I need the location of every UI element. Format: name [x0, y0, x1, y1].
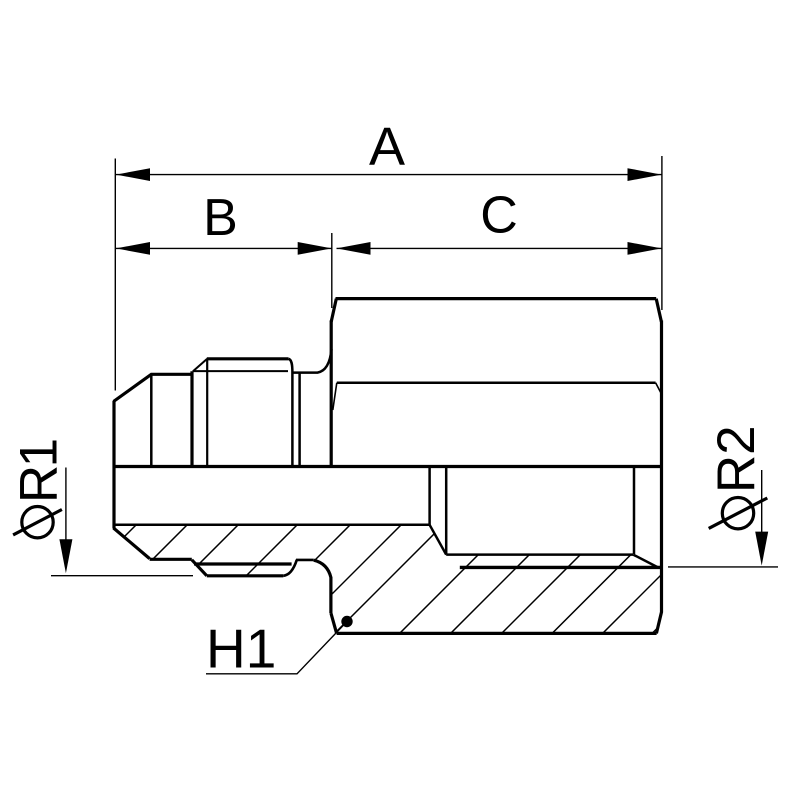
svg-text:B: B [203, 189, 238, 247]
svg-text:H1: H1 [206, 618, 276, 680]
svg-text:A: A [369, 117, 405, 177]
svg-text:R2: R2 [707, 425, 766, 493]
svg-text:R1: R1 [10, 440, 69, 503]
svg-text:C: C [480, 187, 518, 245]
